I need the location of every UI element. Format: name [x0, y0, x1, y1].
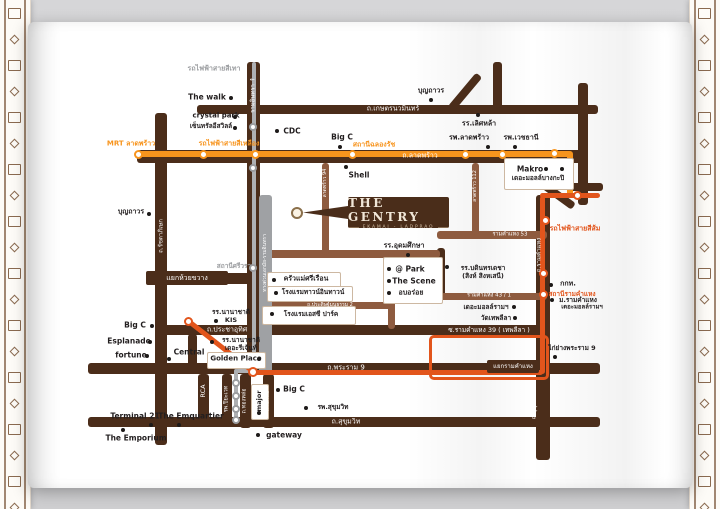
orange-line-top	[540, 193, 600, 198]
poi-dot	[512, 305, 517, 310]
poi-dot	[486, 145, 491, 150]
gentry-logo-subtitle: EKAMAI - LADPRAO	[363, 225, 435, 230]
transit-line-label: รถไฟฟ้าสายสีเหลือง	[199, 140, 260, 149]
road-branch-east	[570, 183, 603, 191]
transit-station-marker	[134, 150, 143, 159]
poi-label: Shell	[349, 170, 370, 179]
poi-label: Esplanade	[107, 336, 150, 345]
transit-station-marker	[550, 149, 559, 158]
intersection-label: แยกห้วยขวาง	[146, 271, 228, 285]
map-stage: THE GENTRY EKAMAI - LADPRAO แยกห้วยขวางแ…	[0, 0, 720, 509]
poi-dot	[513, 316, 518, 321]
poi-dot	[121, 428, 126, 433]
road-name-label: ถ.รามคำแหง	[535, 238, 543, 272]
transit-station-marker	[539, 290, 548, 299]
poi-label: Terminal 21	[110, 411, 159, 420]
road-name-label: รามอินทรา ↑	[249, 77, 257, 113]
transit-line-label: สถานีศรีวรา	[217, 262, 251, 270]
gentry-location-pin-icon	[291, 207, 303, 219]
orange-line-thepleela-loop	[429, 335, 549, 380]
poi-label: ไก่ย่างพระราม 9	[548, 344, 595, 352]
road-name-label: ถ.ประชาอุทิศ	[207, 326, 247, 335]
poi-dot	[147, 212, 152, 217]
gentry-logo: THE GENTRY EKAMAI - LADPRAO	[348, 197, 449, 228]
road-name-label: รามคำแหง 43 / 1	[467, 293, 511, 300]
poi-dot	[553, 355, 558, 360]
transit-station-marker	[348, 150, 357, 159]
poi-label: gateway	[266, 430, 302, 439]
poi-label: วัดเทพลีลา	[481, 314, 511, 322]
transit-line-label: MRT ลาดพร้าว	[107, 140, 155, 149]
road-name-label: ถ.ประดิษฐ์มนูธรรม 2	[307, 302, 353, 308]
transit-station-marker	[251, 150, 260, 159]
logo-flourish-left	[349, 227, 359, 228]
gentry-logo-title: THE GENTRY	[348, 196, 449, 224]
poi-label: The Emporium	[105, 433, 166, 442]
poi-label: Big C	[283, 384, 305, 393]
poi-label: Big C	[124, 320, 146, 329]
transit-station-marker	[248, 367, 258, 377]
poi-label: Golden Place	[210, 355, 261, 364]
poi-dot	[229, 96, 234, 101]
poi-dot	[150, 324, 155, 329]
poi-label: รร.นานาชาติ เดอะรีเจ้นท์	[222, 336, 260, 352]
transit-line-label: รถไฟฟ้าสายสีส้ม	[550, 225, 601, 234]
transit-station-marker	[461, 150, 470, 159]
gentry-logo-subtitle-row: EKAMAI - LADPRAO	[349, 225, 449, 230]
poi-label: Central	[174, 347, 205, 356]
poi-dot	[275, 129, 280, 134]
transit-station-marker	[249, 123, 257, 131]
poi-dot	[445, 265, 450, 270]
poi-dot	[338, 145, 343, 150]
poi-label: Big C	[331, 132, 353, 141]
road-name-label: ถ.พระราม 9	[327, 364, 365, 373]
poi-dot	[304, 406, 309, 411]
poi-label: บุญถาวร	[418, 87, 444, 96]
logo-flourish-right	[438, 227, 448, 228]
transit-station-marker	[232, 416, 240, 424]
poi-label: เดอะมอลล์รามฯ	[463, 303, 508, 311]
poi-label: เดอะมอลล์บางกะปิ	[512, 174, 565, 182]
poi-label: รร.เลิศหล้า	[462, 120, 496, 129]
poi-label: กกท.	[560, 280, 576, 289]
poi-label: รพ.สุขุมวิท	[318, 403, 349, 411]
transit-station-marker	[232, 405, 240, 413]
poi-label: fortune	[115, 350, 146, 359]
poi-label: บุญถาวร	[118, 208, 144, 217]
road-name-label: ถ.เกษตรนวมินทร์	[367, 105, 420, 114]
poi-label: @ Park	[395, 264, 424, 273]
poi-label: อบอร่อย	[399, 289, 424, 298]
road-name-label: RCA	[199, 384, 207, 397]
poi-label: ครัวแม่ศรีเรือน	[284, 275, 329, 284]
poi-dot	[167, 357, 172, 362]
road-name-label: ถ.รัชดาภิเษก	[157, 219, 165, 253]
poi-label: Makro	[517, 164, 543, 173]
poi-label: เซ็นทรัลอีสวิลล์	[190, 122, 232, 130]
transit-station-marker	[498, 150, 507, 159]
transit-station-marker	[541, 216, 550, 225]
road-name-label: รามคำแหง 53	[492, 232, 527, 239]
poi-dot	[549, 283, 554, 288]
transit-line-label: สถานีฉลองรัช	[353, 141, 395, 150]
road-name-label: ถ.เอกมัย	[265, 391, 272, 411]
poi-dot	[148, 340, 153, 345]
poi-label: โรงแรมทาวน์อินทาวน์	[282, 288, 345, 296]
poi-label: โรงแรมเอสซี ปาร์ค	[284, 310, 339, 318]
road-name-label: ลาดพร้าว 112	[472, 170, 478, 202]
poi-label: The Scene	[392, 276, 436, 285]
poi-label: CDC	[283, 126, 300, 135]
poi-dot	[429, 98, 434, 103]
poi-label: รพ.เวชธานี	[503, 134, 538, 143]
poi-dot	[476, 113, 481, 118]
poi-label: The walk	[188, 92, 226, 101]
poi-dot	[513, 145, 518, 150]
transit-station-marker	[249, 164, 257, 172]
poi-dot	[276, 388, 281, 393]
poi-label: รพ.ลาดพร้าว	[449, 134, 489, 143]
poi-label: รร.บดินทรเดชา (สิงห์ สิงหเสนี)	[461, 264, 506, 280]
road-name-label: รพ.ปิยะเวท	[224, 386, 231, 413]
poi-label: รร.อุดมศึกษา	[384, 242, 425, 251]
road-name-label: ถ.ลาดพร้าว	[402, 152, 437, 161]
road-name-label: ถ.สุขุมวิท 71	[530, 385, 538, 419]
transit-station-marker	[232, 379, 240, 387]
road-name-label: ถ.ทองหล่อ	[242, 389, 249, 414]
intersection-label: แยกรามคำแหง	[487, 360, 539, 373]
poi-dot	[344, 165, 349, 170]
poi-dot	[256, 433, 261, 438]
road-name-label: ซ.รามคำแหง 39 ( เทพลีลา )	[448, 326, 530, 334]
brochure-map-canvas: THE GENTRY EKAMAI - LADPRAO แยกห้วยขวางแ…	[0, 0, 720, 509]
poi-dot	[550, 298, 555, 303]
transit-station-marker	[232, 392, 240, 400]
poi-label: เดอะมอลล์รามฯ	[561, 303, 603, 311]
transit-station-marker	[184, 317, 193, 326]
transit-station-marker	[199, 150, 208, 159]
road-name-label: ทางด่วนเอกมัย-รามอินทรา	[262, 234, 268, 292]
poi-dot	[145, 354, 150, 359]
poi-label: The Emquartier	[158, 411, 224, 420]
road-name-label: ลาดพร้าว 94	[322, 169, 328, 198]
poi-label: major	[255, 390, 263, 411]
road-name-label: ถ.สุขุมวิท	[332, 418, 361, 427]
transit-line-label: รถไฟฟ้าสายสีเทา	[188, 65, 241, 74]
road-top-vertical	[493, 62, 502, 108]
poi-dot	[233, 126, 238, 131]
transit-station-marker	[573, 191, 582, 200]
